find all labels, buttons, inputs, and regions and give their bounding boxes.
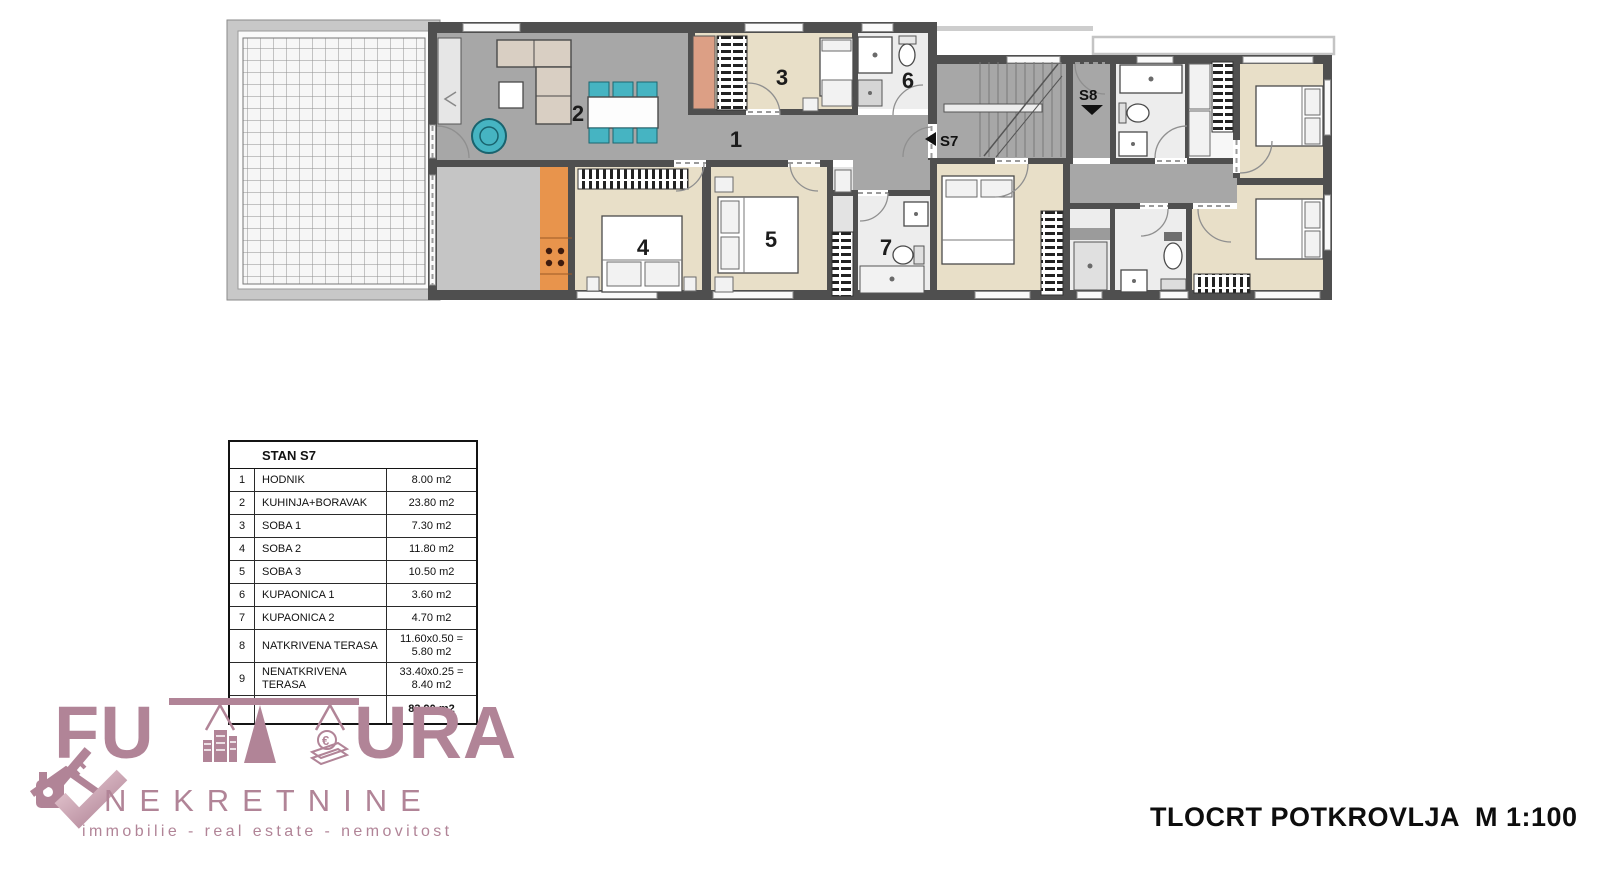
toilet-icon: [1164, 243, 1182, 269]
euro-book-icon: €: [312, 731, 347, 764]
shower-room-fixtures: [1070, 228, 1110, 290]
stove-burner: [546, 248, 552, 254]
tv-cabinet: [438, 38, 461, 124]
nightstand: [715, 177, 733, 192]
table-row: 6 KUPAONICA 1 3.60 m2: [230, 584, 476, 607]
stove-burner: [558, 248, 564, 254]
closet: [693, 36, 715, 109]
room-label-6: 6: [902, 68, 914, 93]
terrace: [227, 20, 440, 300]
toilet-icon: [1127, 104, 1149, 122]
table-row: 2 KUHINJA+BORAVAK 23.80 m2: [230, 492, 476, 515]
stove-burner: [546, 260, 552, 266]
table-row: 5 SOBA 3 10.50 m2: [230, 561, 476, 584]
roof-outline: [930, 26, 1334, 54]
room-label-7: 7: [880, 235, 892, 260]
storage-floor: [433, 167, 540, 297]
terrace-grid: [243, 38, 425, 284]
balance-scale-icon: €: [169, 698, 359, 764]
table-row: 8 NATKRIVENA TERASA 11.60x0.50 = 5.80 m2: [230, 630, 476, 663]
table-row: 7 KUPAONICA 2 4.70 m2: [230, 607, 476, 630]
buildings-icon: [203, 730, 237, 762]
nightstand: [684, 277, 696, 291]
desk: [822, 80, 852, 106]
cabinet: [1189, 64, 1210, 109]
logo-brand-ura: URA: [354, 691, 517, 774]
nightstand: [587, 277, 599, 291]
coffee-table: [499, 82, 523, 108]
logo-subtitle: NEKRETNINE: [104, 783, 434, 818]
marker-s7: S7: [940, 133, 958, 150]
table-row: 3 SOBA 1 7.30 m2: [230, 515, 476, 538]
kitchen-counter: [540, 167, 572, 297]
dining-set: [588, 82, 658, 143]
room-label-2: 2: [572, 101, 584, 126]
table-row: 4 SOBA 2 11.80 m2: [230, 538, 476, 561]
table-row: 1 HODNIK 8.00 m2: [230, 469, 476, 492]
logo-tagline: immobilie - real estate - nemovitost: [82, 823, 453, 840]
logo-brand-fu: FU: [54, 691, 155, 774]
room-label-4: 4: [637, 235, 650, 260]
room-label-1: 1: [730, 127, 742, 152]
stove-burner: [558, 260, 564, 266]
dining-table: [588, 97, 658, 128]
room-label-5: 5: [765, 227, 777, 252]
agency-logo: FU URA €: [24, 678, 524, 848]
toilet-icon: [899, 44, 915, 66]
middle-bedroom-furniture: [942, 176, 1014, 264]
toilet-icon: [893, 246, 913, 264]
cabinet: [1189, 111, 1210, 156]
corridor-floor: [688, 115, 933, 160]
room-label-3: 3: [776, 65, 788, 90]
s8-corridor-floor: [1068, 164, 1237, 203]
euro-symbol: €: [322, 733, 329, 748]
marker-s8: S8: [1079, 87, 1097, 104]
table-header: STAN S7: [230, 442, 476, 469]
nightstand: [715, 277, 733, 292]
armchair: [472, 119, 506, 153]
